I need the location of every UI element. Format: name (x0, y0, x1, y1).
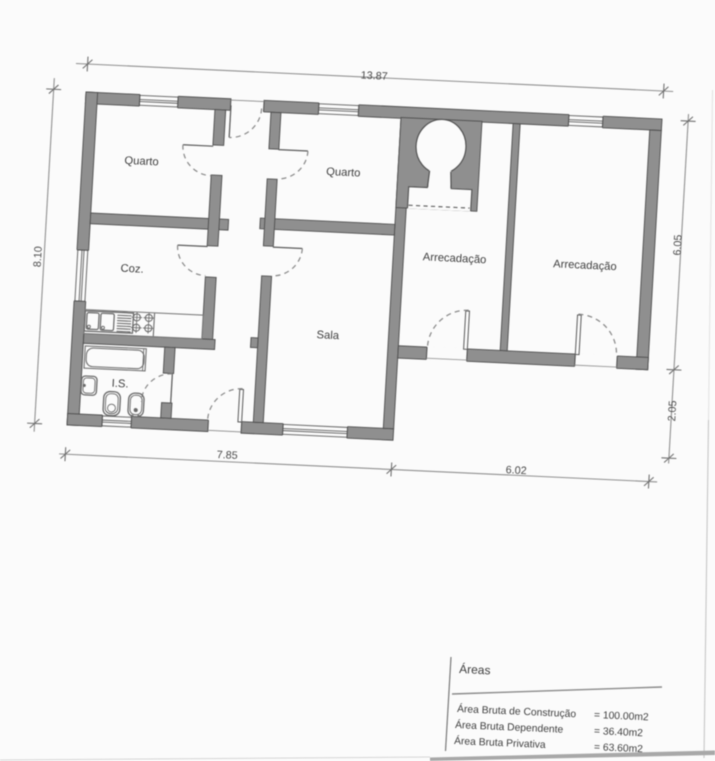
svg-text:Quarto: Quarto (124, 155, 159, 169)
svg-text:Áreas: Áreas (459, 661, 491, 677)
svg-text:= 36.40m2: = 36.40m2 (594, 726, 644, 739)
svg-text:Sala: Sala (316, 329, 340, 342)
svg-text:7.85: 7.85 (216, 449, 238, 462)
svg-text:8.10: 8.10 (32, 246, 45, 267)
svg-text:Quarto: Quarto (326, 166, 361, 180)
svg-text:2.05: 2.05 (666, 400, 679, 421)
svg-text:Coz.: Coz. (120, 263, 144, 276)
svg-text:6.05: 6.05 (671, 234, 684, 255)
svg-text:13.87: 13.87 (360, 70, 388, 83)
svg-text:I.S.: I.S. (111, 378, 128, 391)
svg-text:6.02: 6.02 (505, 464, 527, 477)
svg-text:Arrecadação: Arrecadação (422, 251, 486, 266)
